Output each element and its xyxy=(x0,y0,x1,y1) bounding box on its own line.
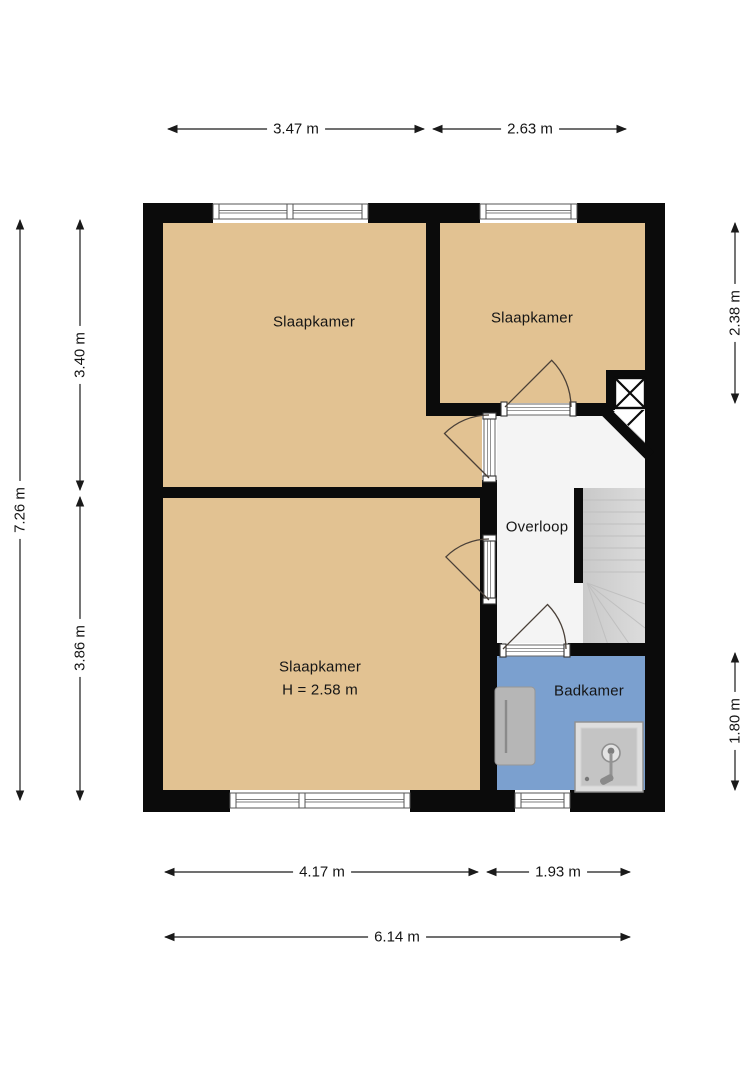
room-floors xyxy=(163,223,645,790)
room-label-slaapkamer-1: Slaapkamer xyxy=(273,314,355,331)
wall-bathroom-top-a xyxy=(482,643,502,656)
dim-bottom-left: 4.17 m xyxy=(293,864,351,881)
wall-bottom-2 xyxy=(410,790,515,812)
room-label-slaapkamer-2: Slaapkamer xyxy=(491,310,573,327)
wall-bottom-1 xyxy=(143,790,230,812)
window-top-left xyxy=(213,204,368,219)
dim-left-total: 7.26 m xyxy=(12,481,29,539)
window-bottom-left xyxy=(230,793,410,808)
shower xyxy=(575,722,643,792)
dim-right-upper: 2.38 m xyxy=(727,284,744,342)
window-bathroom xyxy=(515,793,570,808)
stair-rail-wall xyxy=(574,488,583,583)
dim-left-upper: 3.40 m xyxy=(72,326,89,384)
dim-right-lower: 1.80 m xyxy=(727,692,744,750)
room-label-badkamer: Badkamer xyxy=(554,683,624,700)
door-frame-bedroom3 xyxy=(483,535,496,604)
room-label-slaapkamer-3: Slaapkamer xyxy=(279,659,361,676)
radiator xyxy=(495,687,535,765)
wall-bedroom3-right xyxy=(480,487,497,790)
wall-bathroom-top-b xyxy=(568,643,645,656)
dim-top-left: 3.47 m xyxy=(267,121,325,138)
floor-plan-page: Slaapkamer Slaapkamer Slaapkamer H = 2.5… xyxy=(0,0,755,1067)
door-frame-bedroom1 xyxy=(483,413,496,482)
dim-bottom-total: 6.14 m xyxy=(368,929,426,946)
room-label-ceiling-height: H = 2.58 m xyxy=(282,682,358,699)
wall-mid-horizontal xyxy=(163,487,497,498)
door-frame-bathroom xyxy=(500,644,570,657)
door-frame-bedroom2 xyxy=(501,402,576,416)
dim-bottom-right: 1.93 m xyxy=(529,864,587,881)
dim-left-lower: 3.86 m xyxy=(72,619,89,677)
wall-top-2 xyxy=(368,203,480,223)
wall-right xyxy=(645,203,665,812)
window-top-right xyxy=(480,204,577,219)
stairs xyxy=(574,488,645,645)
wall-left xyxy=(143,203,163,812)
wall-bottom-3 xyxy=(570,790,665,812)
dim-top-right: 2.63 m xyxy=(501,121,559,138)
wall-shaft-top xyxy=(606,370,645,378)
wall-bedroom-divider xyxy=(426,223,440,415)
room-label-overloop: Overloop xyxy=(506,519,568,536)
floor-plan-drawing xyxy=(0,0,755,1067)
